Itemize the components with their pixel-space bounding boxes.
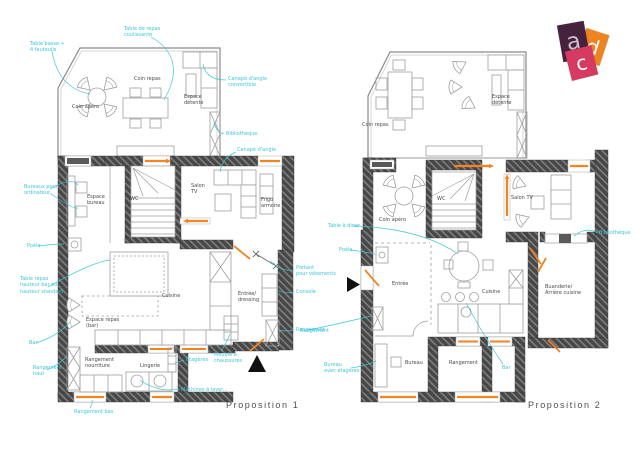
p1-stairs [131, 166, 175, 237]
agency-logo: d a c [551, 20, 623, 90]
proposition-2-title: Proposition 2 [528, 400, 601, 410]
p2-stairs [432, 172, 476, 230]
floorplan-sheet: Table basse + 4 fauteuilsTable de repas … [0, 0, 640, 452]
p2-bookshelf [545, 234, 587, 243]
p1-north-arrow [248, 355, 266, 372]
floorplan-drawing [0, 0, 640, 452]
p1-clothes-rail [253, 251, 279, 269]
proposition-1-title: Proposition 1 [226, 400, 299, 410]
p1-living-furniture [76, 52, 220, 156]
p2-north-arrow [347, 277, 360, 292]
p2-living-furniture [376, 55, 527, 158]
logo-letter-c: c [573, 50, 589, 76]
